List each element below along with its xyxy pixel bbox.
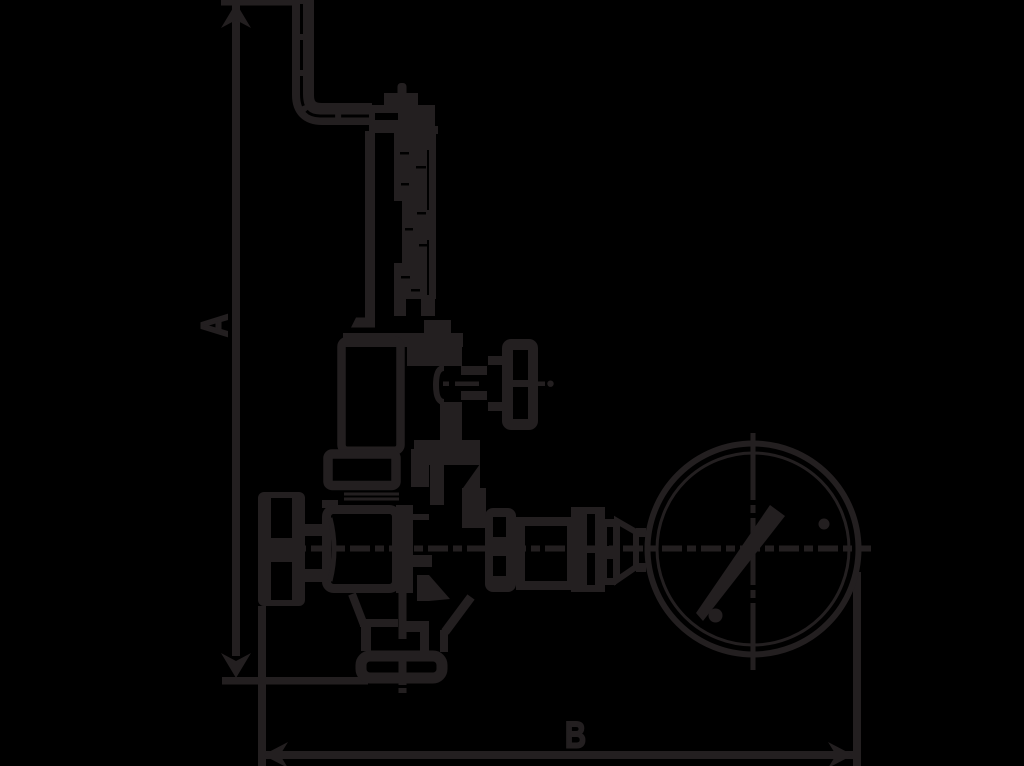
svg-text:B: B [565, 715, 586, 756]
svg-text:A: A [194, 314, 235, 337]
